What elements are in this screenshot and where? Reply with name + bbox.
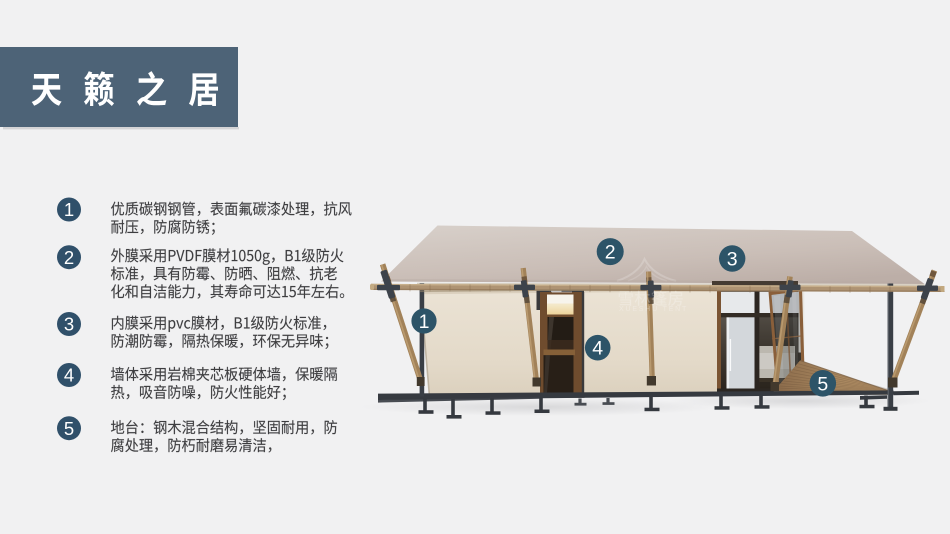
svg-text:5: 5 xyxy=(64,418,74,439)
svg-text:4: 4 xyxy=(592,338,603,360)
svg-text:2: 2 xyxy=(64,247,74,268)
svg-text:1: 1 xyxy=(419,311,430,333)
svg-text:3: 3 xyxy=(64,314,74,335)
svg-text:3: 3 xyxy=(727,249,738,271)
svg-text:4: 4 xyxy=(64,365,74,386)
svg-text:1: 1 xyxy=(64,199,74,220)
svg-text:5: 5 xyxy=(817,373,828,395)
svg-text:2: 2 xyxy=(605,242,616,264)
svg-text:XUESHU TENT: XUESHU TENT xyxy=(619,306,688,313)
